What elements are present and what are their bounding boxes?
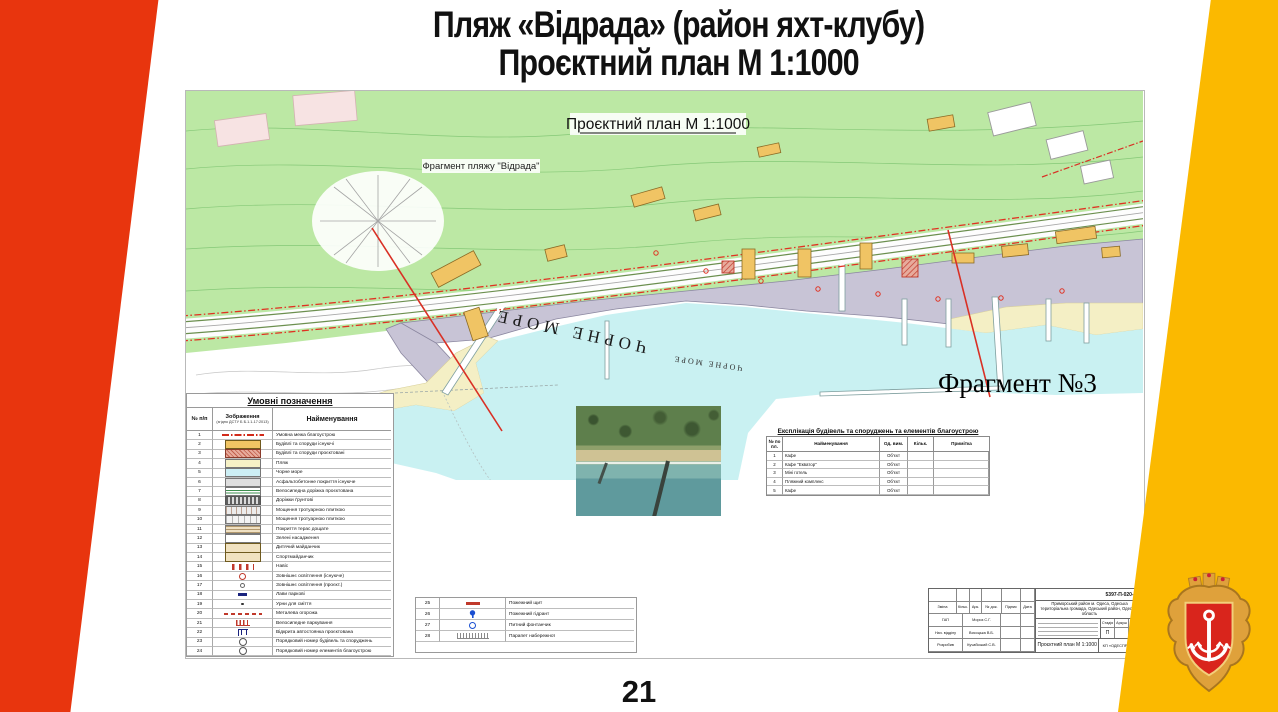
legend-row-num: 25 xyxy=(416,598,440,609)
stamp-object-text xyxy=(1036,619,1101,638)
legend-row-num: 27 xyxy=(416,620,440,631)
expl-row-unit: Об'єкт xyxy=(880,486,908,495)
photo-trees xyxy=(576,406,721,452)
red-comb-icon xyxy=(236,620,250,626)
red-ticks-icon xyxy=(224,613,262,615)
legend-row-num: 7 xyxy=(187,487,213,496)
pinwheel-mark xyxy=(312,171,444,271)
green-rect-icon xyxy=(225,534,261,543)
legend-row-num: 8 xyxy=(187,497,213,506)
legend-row-num: 3 xyxy=(187,450,213,459)
expl-row-unit: Об'єкт xyxy=(880,469,908,478)
page-number: 21 xyxy=(0,674,1278,710)
paver-rect-icon xyxy=(225,506,261,515)
slide-title-line1: Пляж «Відрада» (район яхт-клубу) xyxy=(433,6,924,44)
legend-row-num: 28 xyxy=(416,631,440,642)
legend-row-name: Мощення тротуарною плиткою xyxy=(273,506,391,515)
legend-row-name: Будівлі та споруди проєктовані xyxy=(273,450,391,459)
legend-row-name: Мощення тротуарною плиткою xyxy=(273,516,391,525)
expl-row-note xyxy=(934,461,989,470)
legend-row-num: 2 xyxy=(187,440,213,449)
legend-row-num: 20 xyxy=(187,609,213,618)
paver-rect-2-icon xyxy=(225,515,261,524)
tan-rect-icon xyxy=(225,440,261,449)
legend-row-num: 23 xyxy=(187,638,213,647)
legend-row-name: Металева огорожа xyxy=(273,609,391,618)
expl-row-num: 4 xyxy=(767,478,783,487)
expl-row-note xyxy=(934,486,989,495)
stamp-sheet-label: Аркуш xyxy=(1115,619,1129,627)
legend-row-num: 4 xyxy=(187,459,213,468)
stamp-header-row: Зміна Кільк. Арк. № док. Підпис Дата xyxy=(929,602,1035,615)
stamp-sign-row: ГАП Мороз С.Г. xyxy=(929,614,1035,627)
legend-row-name: Навіс xyxy=(273,562,391,571)
parking-symbol-icon xyxy=(238,629,248,636)
expl-row-unit: Об'єкт xyxy=(880,452,908,461)
legend-row-num: 12 xyxy=(187,534,213,543)
legend-col-name: Найменування xyxy=(306,416,357,423)
legend-row-name: Умовна межа благоустрою xyxy=(273,431,391,440)
legend-row-num: 1 xyxy=(187,431,213,440)
stamp-stage-value: П xyxy=(1101,628,1115,638)
fountain-icon xyxy=(469,622,476,629)
slide-title-line2: Проєктний план М 1:1000 xyxy=(499,44,859,82)
fragment-callout: Фрагмент №3 xyxy=(938,368,1118,399)
legend-row-num: 9 xyxy=(187,506,213,515)
expl-row-note xyxy=(934,452,989,461)
legend-row-num: 24 xyxy=(187,647,213,656)
legend-row-name: Питний фонтанчик xyxy=(506,620,634,631)
legend-row-num: 22 xyxy=(187,628,213,637)
legend-row-name: Пожежний щит xyxy=(506,598,634,609)
expl-col-note: Примітка xyxy=(934,437,989,452)
legend-row-name: Урни для сміття xyxy=(273,600,391,609)
legend-row-name: Відкрита автостоянка проєктована xyxy=(273,628,391,637)
tan-light-rect-icon xyxy=(225,552,261,562)
legend-row-num: 10 xyxy=(187,516,213,525)
expl-row-name: Міні готель xyxy=(783,469,880,478)
stamp-name: Мороз С.Г. xyxy=(963,614,1001,627)
legend-row-name: Зовнішнє освітлення (існуюче) xyxy=(273,572,391,581)
stamp-location: Приморський район м. Одеса, Одеська тери… xyxy=(1036,601,1143,618)
expl-row-qty xyxy=(908,452,934,461)
expl-col-qty: Кільк. xyxy=(908,437,934,452)
legend-row-name: Дитячий майданчик xyxy=(273,544,391,553)
expl-row-note xyxy=(934,478,989,487)
legend-rows: 1 Умовна межа благоустрою 2 Будівлі та с… xyxy=(187,431,393,656)
stamp-name: Висоцька В.Б. xyxy=(963,627,1001,640)
stamp-role: Розробив xyxy=(929,639,963,652)
legend-header: № п/п Зображення (згідно ДСТУ Б Б.1.1-17… xyxy=(187,407,393,431)
expl-row-name: Пляжний комплекс xyxy=(783,478,880,487)
legend-table-2: 25 Пожежний щит 26 Пожежний гідрант 27 П… xyxy=(415,597,637,653)
title-block-signatures: Зміна Кільк. Арк. № док. Підпис Дата ГАП… xyxy=(929,589,1036,652)
map-plan-title: Проєктний план М 1:1000 xyxy=(566,116,750,133)
expl-row-qty xyxy=(908,486,934,495)
legend-row-num: 15 xyxy=(187,562,213,571)
legend-row-name: Порядковий номер будівель та споруджень xyxy=(273,638,391,647)
red-bar-icon xyxy=(466,602,480,605)
expl-col-name: Найменування xyxy=(783,437,880,452)
legend-row-name: Покриття терас дощате xyxy=(273,525,391,534)
legend-row-name: Пожежний гідрант xyxy=(506,609,634,620)
presentation-slide: Пляж «Відрада» (район яхт-клубу) Проєктн… xyxy=(0,0,1278,712)
legend-row-name: Парапет набережної xyxy=(506,631,634,642)
red-brackets-icon xyxy=(232,564,254,570)
stamp-drawing-title: Проєктний план М 1:1000 xyxy=(1036,639,1099,652)
legend-row-num: 11 xyxy=(187,525,213,534)
legend-col-num: № п/п xyxy=(191,416,207,422)
aerial-photo xyxy=(576,406,721,516)
stamp-role: Нач. відділу xyxy=(929,627,963,640)
legend-row-name: Велосипедне паркування xyxy=(273,619,391,628)
legend-row-name: Пляж xyxy=(273,459,391,468)
expl-row-unit: Об'єкт xyxy=(880,461,908,470)
title-block: Зміна Кільк. Арк. № док. Підпис Дата ГАП… xyxy=(928,588,1143,653)
expl-row-name: Кафе xyxy=(783,452,880,461)
map-fragment-label: Фрагмент пляжу "Відрада" xyxy=(422,161,539,172)
expl-row-unit: Об'єкт xyxy=(880,478,908,487)
expl-row-num: 2 xyxy=(767,461,783,470)
expl-row-num: 1 xyxy=(767,452,783,461)
sea-rect-icon xyxy=(225,468,261,477)
title-block-info: 5397-П-020-ГП Приморський район м. Одеса… xyxy=(1036,589,1143,652)
photo-surf-line xyxy=(576,462,721,464)
legend-row-num: 13 xyxy=(187,544,213,553)
stamp-sign-row: Розробив Кучабський С.В. xyxy=(929,639,1035,652)
legend-row-name: Зовнішнє освітлення (проєкт.) xyxy=(273,581,391,590)
explication-table: Експлікація будівель та споруджень та ел… xyxy=(766,428,990,496)
stamp-doc-number: 5397-П-020-ГП xyxy=(1036,589,1143,601)
legend-row-name: Доріжки ґрунтові xyxy=(273,497,391,506)
red-dashdot-line-icon xyxy=(222,434,264,436)
stamp-stage-label: Стадія xyxy=(1101,619,1115,627)
circled-number-2-icon xyxy=(239,647,247,655)
dot-icon xyxy=(241,603,243,605)
stamp-name: Кучабський С.В. xyxy=(963,639,1001,652)
legend-row-num: 21 xyxy=(187,619,213,628)
legend-row-num: 18 xyxy=(187,591,213,600)
slide-title: Пляж «Відрада» (район яхт-клубу) Проєктн… xyxy=(200,6,1158,81)
legend-row-num: 16 xyxy=(187,572,213,581)
legend-row-name: Чорне море xyxy=(273,469,391,478)
left-accent-band xyxy=(0,0,160,712)
legend-row-num: 19 xyxy=(187,600,213,609)
beach-rect-icon xyxy=(225,459,261,468)
legend-row-name: Лави паркові xyxy=(273,591,391,600)
expl-col-unit: Од. вим. xyxy=(880,437,908,452)
photo-small-pier xyxy=(598,463,608,485)
parapet-icon xyxy=(457,633,489,639)
legend-row-num: 17 xyxy=(187,581,213,590)
legend-row-name: Асфальтобетонне покриття існуюче xyxy=(273,478,391,487)
small-circle-icon xyxy=(240,583,246,589)
expl-row-qty xyxy=(908,478,934,487)
expl-row-num: 5 xyxy=(767,486,783,495)
legend-row-name: Велосипедна доріжка проєктована xyxy=(273,487,391,496)
green-striped-rect-icon xyxy=(225,487,261,496)
expl-row-qty xyxy=(908,469,934,478)
legend-row-name: Порядковий номер елементів благоустрою xyxy=(273,647,391,656)
legend-row-name: Спортмайданчик xyxy=(273,553,391,562)
legend-row-num: 6 xyxy=(187,478,213,487)
expl-row-name: Кафе xyxy=(783,486,880,495)
stamp-empty-row xyxy=(929,589,1035,602)
circled-number-icon xyxy=(239,638,247,646)
navy-dash-icon xyxy=(238,593,247,596)
legend-row-num: 26 xyxy=(416,609,440,620)
expl-col-num: № по пл. xyxy=(767,437,783,452)
legend-row-name: Зелені насадження xyxy=(273,534,391,543)
legend-col-symbol-note: (згідно ДСТУ Б Б.1.1-17:2013) xyxy=(216,420,268,424)
expl-row-num: 3 xyxy=(767,469,783,478)
gray-rect-icon xyxy=(225,478,261,487)
dark-hatch-rect-icon xyxy=(225,496,261,505)
plank-rect-icon xyxy=(225,525,261,534)
stamp-sign-row: Нач. відділу Висоцька В.Б. xyxy=(929,627,1035,640)
hydrant-icon xyxy=(468,610,477,619)
explication-title: Експлікація будівель та споруджень та ел… xyxy=(766,428,990,435)
legend-title: Умовні позначення xyxy=(187,394,393,407)
legend-row-num: 14 xyxy=(187,553,213,562)
expl-row-note xyxy=(934,469,989,478)
legend2-rows: 25 Пожежний щит 26 Пожежний гідрант 27 П… xyxy=(416,598,636,642)
expl-row-qty xyxy=(908,461,934,470)
red-circle-icon xyxy=(239,573,246,580)
legend-table: Умовні позначення № п/п Зображення (згід… xyxy=(186,393,394,657)
legend-row-num: 5 xyxy=(187,469,213,478)
expl-row-name: Кафе "Екватор" xyxy=(783,461,880,470)
explication-grid: № по пл. Найменування Од. вим. Кільк. Пр… xyxy=(766,436,990,496)
photo-pier xyxy=(652,461,670,516)
stamp-role: ГАП xyxy=(929,614,963,627)
hatched-rect-icon xyxy=(225,449,261,458)
legend-row-name: Будівлі та споруди існуючі xyxy=(273,440,391,449)
